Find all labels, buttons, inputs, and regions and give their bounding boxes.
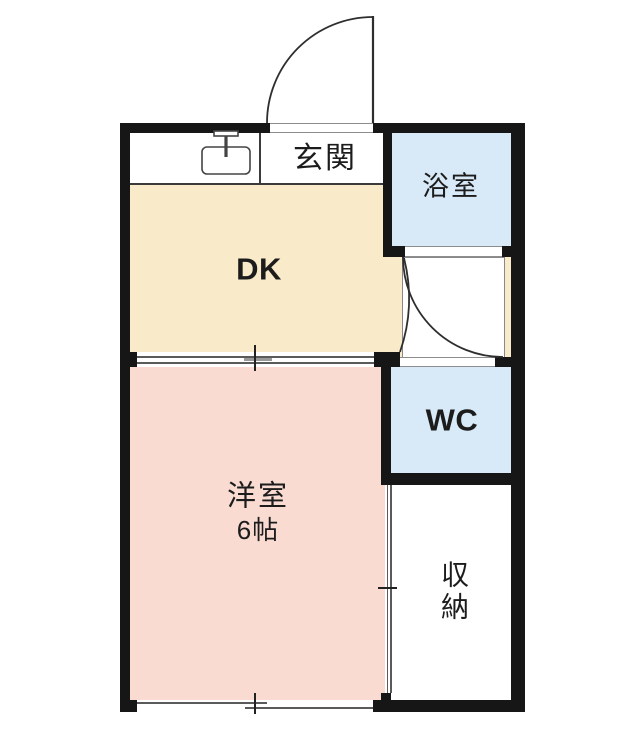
room-label-bathroom: 浴室 xyxy=(422,174,480,201)
entrance-door-icon xyxy=(267,16,373,123)
kitchen-sink-icon xyxy=(202,131,250,174)
floor-plan: 玄関 DK 浴室 WC 洋室 6帖 収納 xyxy=(0,0,633,745)
room-label-wc: WC xyxy=(426,405,479,436)
room-size-western: 6帖 xyxy=(237,517,279,543)
hall-door-icon xyxy=(400,257,503,357)
room-label-dk: DK xyxy=(236,254,282,285)
fixtures-layer xyxy=(0,0,633,745)
room-label-storage: 収納 xyxy=(439,560,467,624)
room-label-genkan: 玄関 xyxy=(293,144,357,174)
room-label-western: 洋室 xyxy=(227,483,289,512)
